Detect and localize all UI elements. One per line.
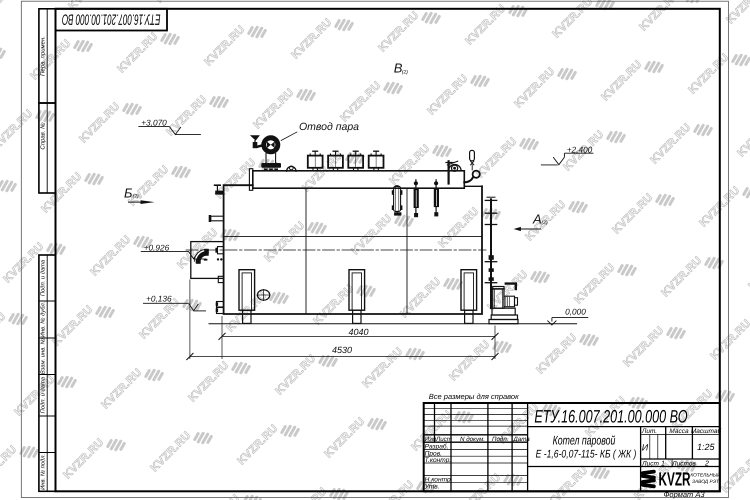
svg-text:КОТЕЛЬНЫЙ: КОТЕЛЬНЫЙ <box>690 472 721 479</box>
svg-text:Подп. и дата: Подп. и дата <box>40 376 47 413</box>
svg-text:Изм: Изм <box>425 436 437 443</box>
svg-text:4040: 4040 <box>348 327 368 337</box>
svg-text:Взам. инв. №: Взам. инв. № <box>41 338 47 375</box>
svg-text:Лит.: Лит. <box>641 428 657 435</box>
svg-text:Инв. № подл.: Инв. № подл. <box>40 454 47 490</box>
svg-text:Котел паровой: Котел паровой <box>553 433 616 447</box>
svg-text:(2): (2) <box>542 220 548 226</box>
svg-text:Е -1,6-0,07-115- КБ ( ЖК ): Е -1,6-0,07-115- КБ ( ЖК ) <box>536 449 637 461</box>
svg-text:0,000: 0,000 <box>565 306 586 316</box>
svg-text:Справ. №: Справ. № <box>40 122 47 150</box>
svg-text:Масса: Масса <box>669 428 689 435</box>
svg-text:Утв.: Утв. <box>424 484 440 491</box>
svg-text:+3,070: +3,070 <box>141 117 167 127</box>
svg-text:4530: 4530 <box>332 345 352 355</box>
svg-text:Лист: Лист <box>435 436 452 443</box>
svg-text:1:25: 1:25 <box>697 442 716 452</box>
svg-text:+0,926: +0,926 <box>144 242 170 252</box>
svg-text:Масштаб: Масштаб <box>691 428 722 435</box>
svg-text:1: 1 <box>661 460 665 467</box>
svg-text:Отвод пара: Отвод пара <box>299 121 359 133</box>
svg-text:Н.контр.: Н.контр. <box>425 476 453 483</box>
svg-text:Дата: Дата <box>512 436 530 443</box>
svg-text:+0,136: +0,136 <box>146 293 172 303</box>
svg-text:Формат А3: Формат А3 <box>663 490 705 499</box>
svg-text:ЕТУ.16.007.201.00.000 ВО: ЕТУ.16.007.201.00.000 ВО <box>534 406 687 426</box>
svg-text:Подп.: Подп. <box>492 436 508 443</box>
svg-text:Перв. примен.: Перв. примен. <box>40 36 47 76</box>
svg-text:Лист: Лист <box>641 460 659 467</box>
svg-text:(2): (2) <box>133 194 139 200</box>
svg-text:И: И <box>642 443 649 453</box>
svg-text:2: 2 <box>704 460 709 467</box>
svg-text:А: А <box>532 212 542 227</box>
svg-text:N докум.: N докум. <box>460 436 485 443</box>
svg-text:KVZR: KVZR <box>658 470 690 491</box>
svg-text:Листов: Листов <box>671 460 696 467</box>
svg-text:Т.контр.: Т.контр. <box>425 457 452 464</box>
svg-text:Инв. № дубл.: Инв. № дубл. <box>40 302 47 338</box>
svg-text:ЕТУ.16.007.201.00.000 ВО: ЕТУ.16.007.201.00.000 ВО <box>62 10 161 27</box>
svg-text:(2): (2) <box>402 70 408 76</box>
svg-text:Все размеры для справок: Все размеры для справок <box>429 392 519 401</box>
svg-text:Подп. и дата: Подп. и дата <box>40 259 47 296</box>
svg-text:ЗАВОД РЭТ: ЗАВОД РЭТ <box>692 479 720 485</box>
